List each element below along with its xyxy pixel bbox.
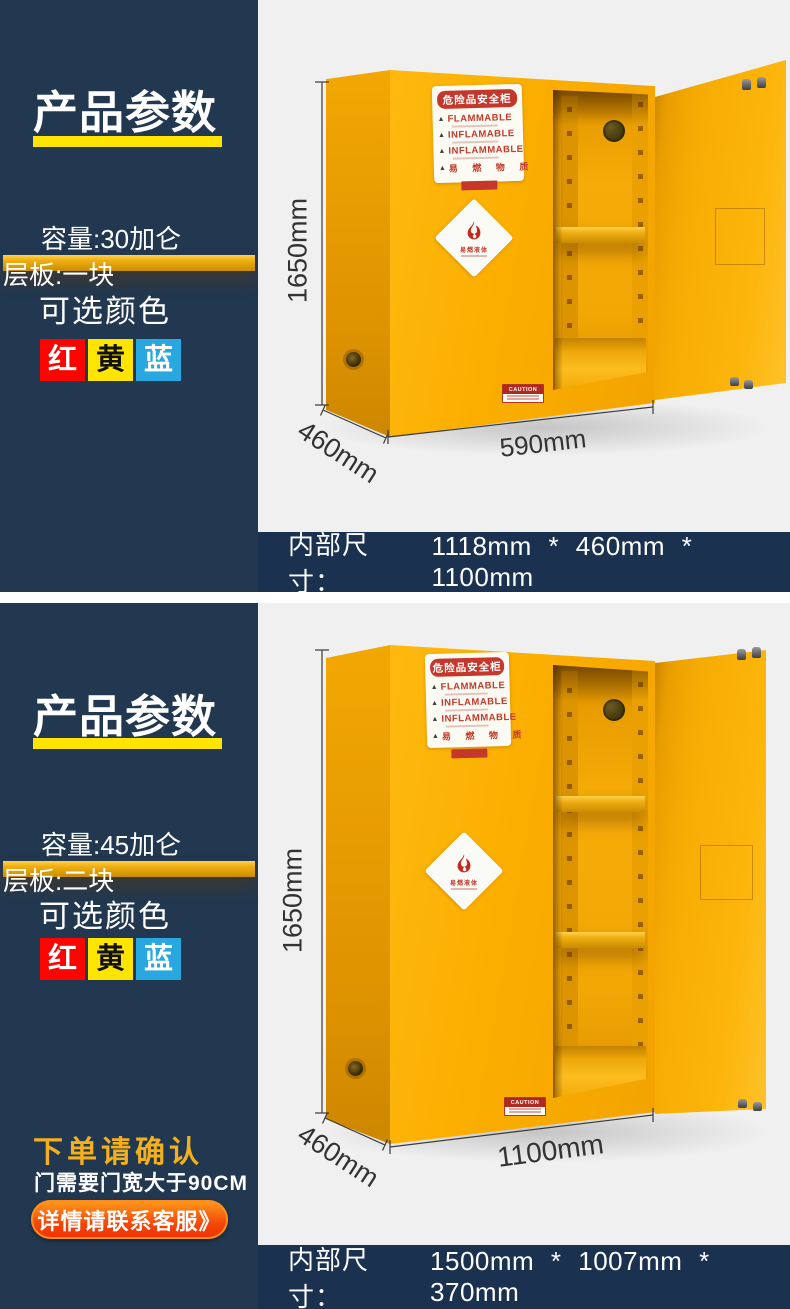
- warning-triangle-icon: ▲: [438, 116, 445, 123]
- label-text: 易 燃 物 质: [442, 727, 528, 742]
- door-inset-panel: [715, 208, 765, 265]
- warning-triangle-icon: ▲: [431, 700, 438, 707]
- caution-label: CAUTION: [503, 385, 543, 394]
- color-swatches: 红 黄 蓝: [40, 938, 181, 980]
- caution-fine-print: [509, 1111, 541, 1113]
- spec-capacity: 容量:45加仑: [41, 825, 181, 862]
- warning-triangle-icon: ▲: [431, 684, 438, 691]
- diamond-content: 易燃液体: [446, 210, 502, 266]
- label-row: ▲ 易 燃 物 质: [432, 728, 506, 743]
- door-inset-panel: [700, 845, 753, 900]
- warning-triangle-icon: ▲: [438, 132, 445, 139]
- flammable-diamond-sticker: 易燃液体: [424, 831, 503, 910]
- color-option-red: 红: [40, 938, 85, 980]
- brand-badge: [451, 749, 487, 759]
- spec-shelf-count: 层板:一块: [3, 255, 255, 271]
- color-options-label: 可选颜色: [39, 891, 171, 936]
- order-confirm-subtitle: 门需要门宽大于90CM: [34, 1167, 248, 1197]
- hinge-knob: [738, 1099, 747, 1108]
- label-row: ▲ INFLAMMABLE: [438, 144, 518, 157]
- section-title: 产品参数: [33, 680, 217, 745]
- inner-dimensions-label: 内部尺寸：: [288, 1240, 414, 1309]
- label-row: ▲ FLAMMABLE: [431, 680, 505, 693]
- product-photo-30gal: 危险品安全柜 ▲ FLAMMABLE ▲ INFLAMABLE ▲ INFLAM…: [258, 0, 790, 532]
- hinge-knob: [757, 77, 766, 88]
- hinge-knob: [744, 380, 753, 389]
- shelf: [556, 932, 645, 948]
- section-divider: [0, 592, 790, 603]
- lock-hole: [346, 352, 361, 367]
- hinge-knob: [730, 377, 739, 386]
- color-option-red: 红: [40, 339, 85, 381]
- shelf: [556, 227, 645, 243]
- label-text: INFLAMMABLE: [441, 712, 516, 725]
- cabinet-interior: [553, 665, 648, 1098]
- cabinet-side-panel: [326, 70, 390, 437]
- flame-icon: [453, 853, 475, 877]
- shelf-slot-holes: [638, 682, 643, 1077]
- label-text: INFLAMMABLE: [448, 144, 523, 157]
- warning-triangle-icon: ▲: [438, 148, 445, 155]
- label-text: INFLAMABLE: [448, 128, 515, 141]
- inner-dimensions-bar: 内部尺寸： 1500mm * 1007mm * 370mm: [258, 1245, 790, 1309]
- diamond-sublabel: [461, 255, 487, 257]
- height-dimension: 1650mm: [283, 189, 314, 313]
- product-photo-45gal: 危险品安全柜 ▲ FLAMMABLE ▲ INFLAMABLE ▲ INFLAM…: [258, 603, 790, 1245]
- section-title: 产品参数: [33, 76, 217, 141]
- order-confirm-title: 下单请确认: [33, 1127, 203, 1171]
- interior-sump-floor: [555, 338, 646, 390]
- flame-icon: [463, 220, 485, 244]
- open-door: [655, 60, 786, 400]
- shelf: [556, 796, 645, 812]
- interior-shadow: [553, 90, 648, 126]
- inner-dimensions-label: 内部尺寸：: [288, 525, 415, 599]
- cabinet-front: 危险品安全柜 ▲ FLAMMABLE ▲ INFLAMABLE ▲ INFLAM…: [390, 70, 655, 437]
- spec-shelf-count: 层板:二块: [3, 861, 255, 877]
- interior-shadow: [553, 90, 563, 390]
- height-dimension: 1650mm: [278, 839, 309, 963]
- label-row: ▲ 易 燃 物 质: [439, 160, 519, 175]
- spec-capacity: 容量:30加仑: [41, 219, 181, 256]
- warning-triangle-icon: ▲: [432, 733, 439, 740]
- label-row: ▲ INFLAMABLE: [431, 696, 505, 709]
- label-row: ▲ INFLAMMABLE: [431, 712, 505, 725]
- title-underline: [33, 136, 222, 147]
- caution-fine-print: [509, 1108, 541, 1110]
- shelf-slot-holes: [567, 688, 572, 1074]
- warning-triangle-icon: ▲: [439, 165, 446, 172]
- safety-label-header: 危险品安全柜: [437, 89, 517, 109]
- brand-badge: [461, 181, 497, 191]
- label-text: FLAMMABLE: [447, 112, 512, 125]
- interior-left-post: [561, 671, 578, 1090]
- hinge-knob: [752, 647, 761, 658]
- open-door: [655, 650, 766, 1114]
- spec-panel-30gal: 产品参数 容量:30加仑 层板:一块 可选颜色 红 黄 蓝: [0, 0, 258, 592]
- safety-label: 危险品安全柜 ▲ FLAMMABLE ▲ INFLAMABLE ▲ INFLAM…: [425, 652, 511, 748]
- caution-label: CAUTION: [505, 1098, 545, 1107]
- safety-label: 危险品安全柜 ▲ FLAMMABLE ▲ INFLAMABLE ▲ INFLAM…: [432, 84, 525, 183]
- diamond-content: 易燃液体: [436, 843, 492, 899]
- cabinet-front: 危险品安全柜 ▲ FLAMMABLE ▲ INFLAMABLE ▲ INFLAM…: [390, 645, 655, 1144]
- color-option-yellow: 黄: [88, 938, 133, 980]
- inner-dimensions-value: 1500mm * 1007mm * 370mm: [430, 1246, 790, 1308]
- color-swatches: 红 黄 蓝: [40, 339, 181, 381]
- label-text: FLAMMABLE: [440, 680, 505, 693]
- hinge-knob: [742, 79, 751, 90]
- warning-triangle-icon: ▲: [431, 716, 438, 723]
- color-option-blue: 蓝: [136, 339, 181, 381]
- interior-shadow: [553, 665, 648, 701]
- color-options-label: 可选颜色: [39, 286, 171, 331]
- label-text: 易 燃 物 质: [449, 160, 535, 175]
- caution-fine-print: [507, 395, 539, 397]
- interior-shadow: [553, 665, 563, 1098]
- flammable-diamond-sticker: 易燃液体: [434, 198, 513, 277]
- lock-hole: [348, 1061, 363, 1076]
- spec-panel-45gal: 产品参数 容量:45加仑 层板:二块 可选颜色 红 黄 蓝 下单请确认 门需要门…: [0, 603, 258, 1309]
- diamond-label: 易燃液体: [460, 245, 488, 254]
- diamond-label: 易燃液体: [450, 878, 478, 887]
- color-option-yellow: 黄: [88, 339, 133, 381]
- label-row: ▲ INFLAMABLE: [438, 128, 518, 141]
- safety-label-header: 危险品安全柜: [430, 657, 504, 677]
- diamond-sublabel: [451, 888, 477, 890]
- caution-strip: CAUTION: [504, 1097, 546, 1116]
- contact-service-button[interactable]: 详情请联系客服》: [31, 1200, 228, 1239]
- vent-icon: [603, 699, 625, 721]
- caution-fine-print: [507, 398, 539, 400]
- hinge-knob: [737, 649, 746, 660]
- interior-right-post: [632, 665, 648, 1094]
- color-option-blue: 蓝: [136, 938, 181, 980]
- label-text: INFLAMABLE: [441, 696, 508, 709]
- interior-sump-floor: [555, 1046, 646, 1098]
- title-underline: [33, 738, 222, 749]
- product-detail-page: 产品参数 容量:30加仑 层板:一块 可选颜色 红 黄 蓝: [0, 0, 790, 1309]
- caution-strip: CAUTION: [502, 384, 544, 403]
- cabinet-interior: [553, 90, 648, 390]
- inner-dimensions-value: 1118mm * 460mm * 1100mm: [431, 531, 790, 593]
- hinge-knob: [753, 1102, 762, 1111]
- inner-dimensions-bar: 内部尺寸： 1118mm * 460mm * 1100mm: [258, 532, 790, 592]
- label-row: ▲ FLAMMABLE: [437, 112, 517, 125]
